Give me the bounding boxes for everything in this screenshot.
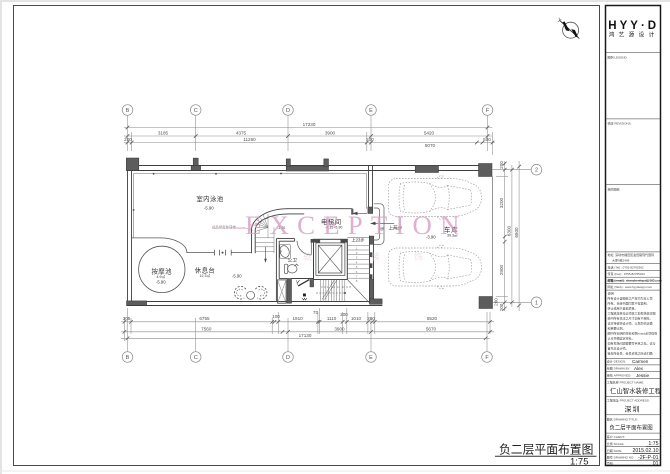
svg-text:6: 6 [356, 270, 358, 274]
svg-text:装: 装 [371, 251, 380, 262]
svg-text:C: C [194, 355, 198, 361]
svg-text:500: 500 [483, 137, 491, 142]
svg-text:大厦9栋2408: 大厦9栋2408 [612, 258, 630, 263]
svg-text:8: 8 [356, 279, 358, 283]
svg-text:10: 10 [342, 285, 346, 289]
svg-text:请对特装饰设计师。以免影响正确: 请对特装饰设计师。以免影响正确 [608, 321, 653, 326]
svg-text:公卫: 公卫 [288, 257, 298, 262]
svg-text:E: E [369, 355, 373, 361]
svg-text:绘图 DRAWN BY:: 绘图 DRAWN BY: [607, 366, 631, 371]
svg-text:首先本设计师。: 首先本设计师。 [608, 346, 629, 351]
svg-text:3: 3 [321, 285, 323, 289]
svg-text:3900: 3900 [325, 130, 336, 135]
svg-text:图名 DRAWING TITLE:: 图名 DRAWING TITLE: [607, 417, 638, 422]
svg-text:5: 5 [356, 265, 358, 269]
svg-text:4: 4 [356, 260, 358, 264]
svg-text:相关图纸:: 相关图纸: [608, 187, 621, 192]
svg-text:2: 2 [535, 168, 538, 174]
svg-text:软: 软 [303, 251, 312, 262]
svg-text:转让或用于其他项目。: 转让或用于其他项目。 [608, 306, 638, 311]
svg-text:6500: 6500 [514, 227, 519, 238]
svg-text:-5.90: -5.90 [204, 205, 214, 210]
svg-text:页码:: 页码: [607, 461, 614, 466]
svg-text:200: 200 [124, 137, 132, 142]
svg-text:网址 (Web) : www.hyydesign.com: 网址 (Web) : www.hyydesign.com [608, 284, 653, 289]
svg-text:200: 200 [499, 303, 504, 311]
svg-text:5520: 5520 [427, 316, 438, 321]
svg-text:4.9㎡: 4.9㎡ [157, 274, 166, 279]
svg-text:200: 200 [366, 137, 374, 142]
svg-text:图中所标明的材料和色board必须得到: 图中所标明的材料和色board必须得到 [608, 331, 658, 336]
svg-text:所有设计含图纸之产权均为本公司: 所有设计含图纸之产权均为本公司 [608, 296, 653, 301]
svg-text:负二层平面布置图: 负二层平面布置图 [610, 424, 653, 432]
svg-text:EXCEPTION: EXCEPTION [245, 210, 468, 240]
svg-text:邮箱 (email): shenzhenhyyd@163.c: 邮箱 (email): shenzhenhyyd@163.com [608, 278, 662, 283]
svg-text:6755: 6755 [199, 316, 210, 321]
svg-text:11: 11 [337, 285, 340, 289]
svg-text:比例 SCALE:: 比例 SCALE: [607, 441, 625, 446]
svg-text:客户 CLIENT:: 客户 CLIENT: [607, 434, 625, 439]
svg-text:按摩池: 按摩池 [152, 266, 173, 275]
svg-text:12: 12 [332, 285, 336, 289]
svg-text:电话 (Tel) : 0755-82765362: 电话 (Tel) : 0755-82765362 [608, 264, 645, 269]
svg-text:地址: 深圳市福田区金田路现代国际: 地址: 深圳市福田区金田路现代国际 [608, 252, 655, 257]
svg-text:12.3㎡: 12.3㎡ [200, 273, 211, 278]
svg-text:所有。未经书面同意不得复制、: 所有。未经书面同意不得复制、 [608, 301, 650, 306]
svg-text:B: B [126, 355, 130, 361]
svg-text:室内泳池: 室内泳池 [196, 194, 223, 203]
svg-text:深圳: 深圳 [625, 405, 641, 414]
svg-text:1: 1 [356, 246, 358, 250]
svg-text:1:75: 1:75 [570, 457, 589, 468]
svg-text:工程名称 PROJECT NAME:: 工程名称 PROJECT NAME: [607, 380, 644, 385]
svg-text:9: 9 [346, 285, 348, 289]
svg-text:纸中所有墨注之尺寸如有不相符。: 纸中所有墨注之尺寸如有不相符。 [608, 316, 653, 321]
svg-text:图例 LEGEND:: 图例 LEGEND: [608, 55, 628, 60]
svg-text:仁山智水装修工程: 仁山智水装修工程 [610, 386, 662, 395]
svg-text:200: 200 [494, 298, 499, 306]
svg-text:3: 3 [356, 256, 358, 260]
svg-text:1010: 1010 [351, 316, 362, 321]
svg-text:Alex: Alex [634, 366, 644, 371]
svg-text:6300: 6300 [507, 225, 512, 236]
svg-text:日期 DATE:: 日期 DATE: [607, 448, 623, 453]
svg-text:4375: 4375 [236, 130, 247, 135]
svg-text:2900: 2900 [499, 264, 504, 275]
svg-text:200: 200 [340, 312, 348, 317]
svg-text:17130: 17130 [299, 333, 312, 338]
svg-text:D: D [286, 108, 290, 114]
svg-text:7560: 7560 [201, 326, 212, 331]
svg-text:1110: 1110 [327, 316, 337, 321]
svg-text:5670: 5670 [426, 326, 437, 331]
svg-text:-5.90: -5.90 [156, 280, 166, 285]
svg-text:1: 1 [535, 300, 538, 306]
svg-text:11260: 11260 [243, 137, 256, 142]
svg-text:17230: 17230 [303, 122, 316, 127]
svg-text:2: 2 [356, 251, 358, 255]
svg-text:305: 305 [123, 316, 131, 321]
svg-text:HYY·D: HYY·D [608, 20, 659, 32]
svg-text:B: B [126, 108, 130, 114]
svg-text:饰: 饰 [414, 251, 423, 262]
svg-text:Jessie: Jessie [636, 373, 649, 378]
svg-text:审核 APPROVED:: 审核 APPROVED: [607, 373, 632, 378]
svg-text:如有现场问题需要写手承之处。请与: 如有现场问题需要写手承之处。请与 [608, 341, 656, 346]
svg-text:01: 01 [653, 461, 659, 467]
svg-text:70: 70 [313, 310, 319, 315]
svg-text:3185: 3185 [158, 130, 169, 135]
svg-text:200: 200 [367, 316, 375, 321]
svg-text:修改 REVISIONS:: 修改 REVISIONS: [608, 121, 632, 126]
svg-text:100: 100 [272, 314, 280, 319]
svg-text:传真 (Fax) : 0755-82765013: 传真 (Fax) : 0755-82765013 [608, 271, 646, 276]
svg-text:负二层平面布置图: 负二层平面布置图 [499, 443, 593, 457]
svg-text:等处所会员、会员资格之际请们确: 等处所会员、会员资格之际请们确 [608, 351, 653, 356]
svg-text:7: 7 [356, 275, 358, 279]
svg-text:Carmen: Carmen [632, 359, 649, 364]
svg-text:鸿艺源设计: 鸿艺源设计 [609, 31, 659, 39]
svg-text:和重要比例。: 和重要比例。 [608, 326, 626, 331]
svg-text:认可并确监定材料。: 认可并确监定材料。 [608, 336, 635, 341]
svg-text:工程承建单位必须核工地现场核对图: 工程承建单位必须核工地现场核对图 [608, 311, 656, 316]
svg-text:C: C [194, 108, 198, 114]
svg-text:1910: 1910 [292, 316, 303, 321]
svg-text:3900: 3900 [334, 326, 345, 331]
svg-text:说明:: 说明: [608, 291, 615, 296]
svg-text:5070: 5070 [425, 143, 436, 148]
svg-text:E: E [369, 108, 373, 114]
svg-text:200: 200 [499, 161, 504, 169]
svg-text:3200: 3200 [499, 197, 504, 208]
svg-text:工程地址 PROJECT ADDRESS:: 工程地址 PROJECT ADDRESS: [607, 398, 650, 403]
svg-text:-5.90: -5.90 [232, 274, 242, 279]
svg-text:图号 DRAWING NO:: 图号 DRAWING NO: [607, 455, 635, 460]
svg-text:8: 8 [349, 285, 351, 289]
svg-text:成品拐角玻璃梯: 成品拐角玻璃梯 [212, 225, 236, 230]
svg-text:5420: 5420 [424, 130, 435, 135]
svg-text:D: D [286, 355, 290, 361]
svg-text:设计 DESIGN:: 设计 DESIGN: [607, 359, 626, 364]
